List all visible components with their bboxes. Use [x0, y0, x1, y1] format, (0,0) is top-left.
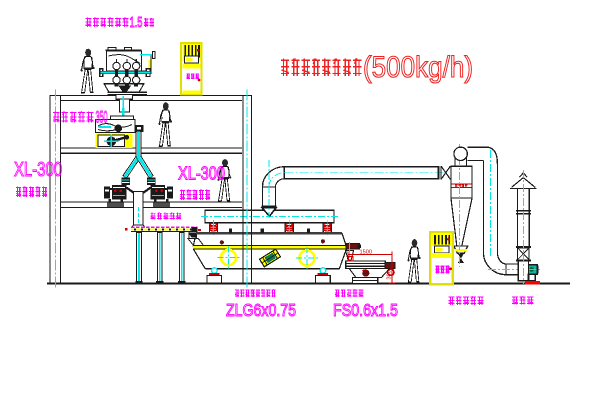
svg-text:XL-300: XL-300 — [178, 164, 225, 184]
svg-text:1500: 1500 — [360, 249, 372, 255]
svg-text:1.5: 1.5 — [130, 14, 143, 31]
svg-text:300: 300 — [386, 270, 392, 279]
svg-text:(500kg/h): (500kg/h) — [363, 51, 473, 84]
svg-text:ZLG6x0.75: ZLG6x0.75 — [226, 300, 296, 320]
svg-text:350: 350 — [96, 108, 108, 127]
svg-text:FS0.6x1.5: FS0.6x1.5 — [333, 300, 398, 320]
svg-text:XL-300: XL-300 — [14, 159, 62, 181]
